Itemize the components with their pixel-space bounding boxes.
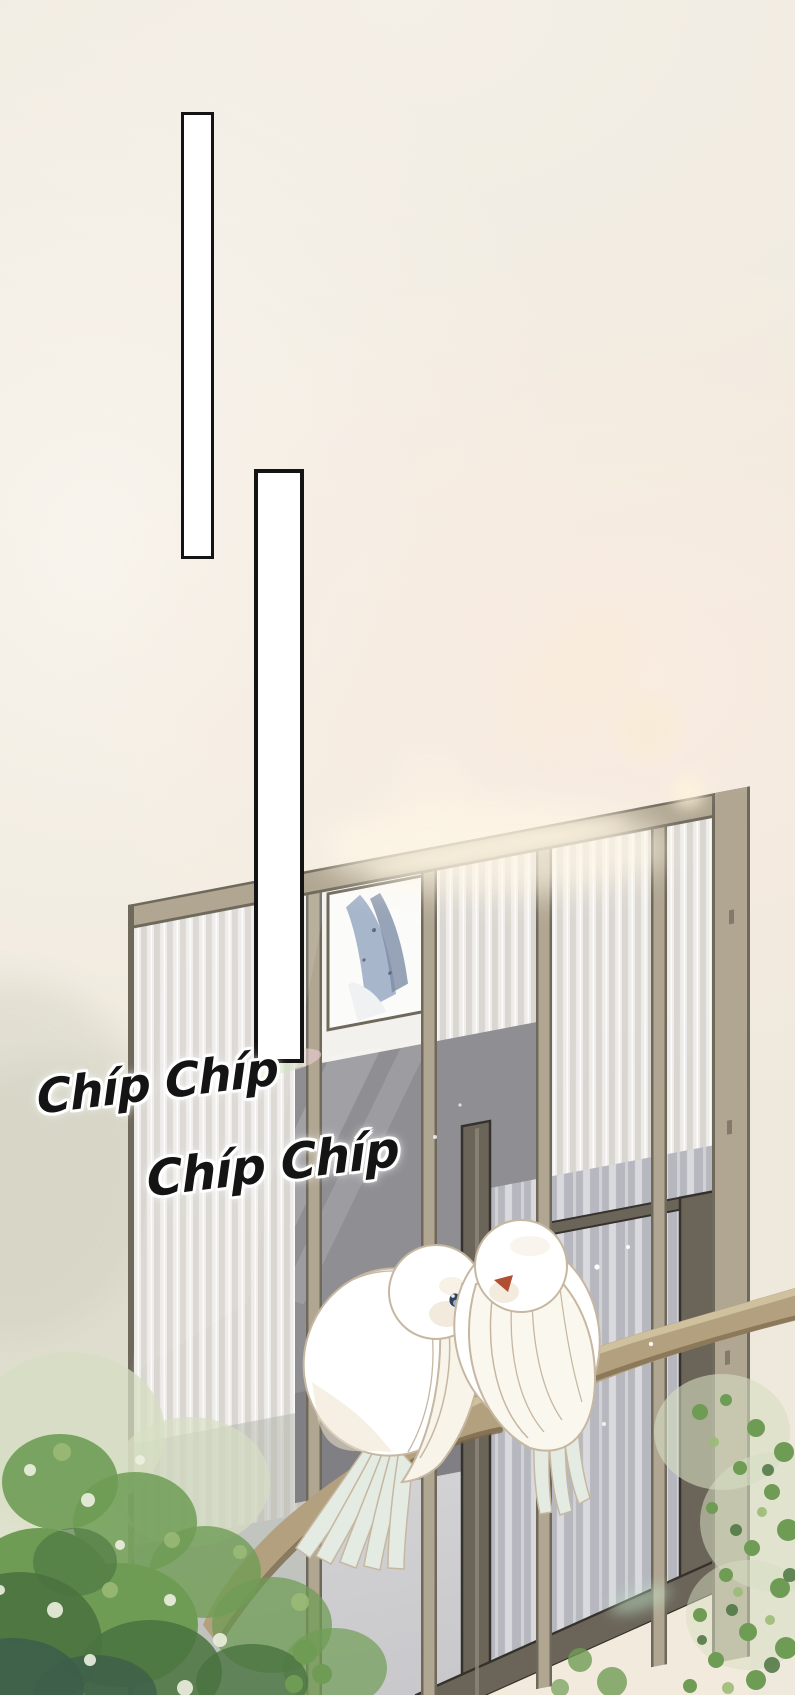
scene-illustration bbox=[0, 0, 795, 1695]
framed-artwork bbox=[328, 875, 428, 1030]
panel-inset-bar-2 bbox=[254, 469, 304, 1063]
light-bokeh bbox=[320, 607, 705, 896]
comic-page: Chíp Chíp Chíp Chíp bbox=[0, 0, 795, 1695]
bird-right-head bbox=[475, 1220, 567, 1312]
panel-inset-bar-1 bbox=[181, 112, 214, 559]
